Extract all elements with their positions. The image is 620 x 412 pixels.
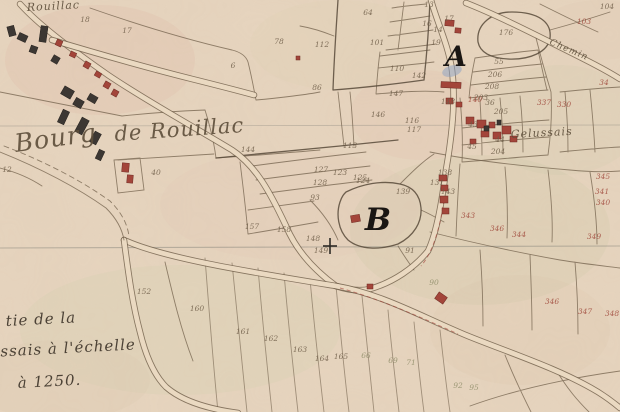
building-red	[441, 81, 461, 88]
building-red	[296, 56, 300, 60]
building-red	[350, 214, 360, 222]
building-red	[456, 102, 462, 107]
parcel-number: 158	[277, 225, 292, 234]
section-marker-A: A	[442, 40, 467, 73]
parcel-number: 71	[406, 358, 416, 367]
parcel-number: 161	[236, 327, 250, 336]
building-red	[122, 163, 130, 173]
parcel-number: 86	[312, 83, 322, 92]
parcel-number: 157	[245, 222, 260, 231]
parcel-number: 163	[293, 345, 308, 354]
parcel-number: 347	[578, 307, 593, 316]
parcel-number: 138	[438, 168, 453, 177]
parcel-number: 112	[315, 40, 330, 49]
map-svg: 1817786124064131617141910111286110142104…	[0, 0, 620, 412]
parcel-number: 101	[370, 38, 384, 47]
building-red	[481, 131, 489, 137]
parcel-number: 346	[490, 224, 505, 233]
parcel-number: 149	[314, 246, 329, 255]
parcel-number: 13	[424, 0, 434, 9]
parcel-number: 124	[356, 176, 371, 185]
parcel-number: 92	[453, 381, 463, 390]
parcel-number: 103	[577, 17, 592, 26]
parcel-number: 206	[487, 70, 503, 79]
parcel-number: 14	[433, 25, 443, 34]
parcel-number: 127	[314, 165, 329, 174]
parcel-number: 143	[441, 187, 456, 196]
parcel-number: 91	[405, 246, 415, 255]
parcel-number: 349	[587, 232, 602, 241]
legend-line: à 1250.	[17, 371, 82, 392]
parcel-number: 66	[361, 351, 371, 360]
parcel-number: 148	[306, 234, 321, 243]
parcel-number: 55	[494, 57, 504, 66]
parcel-number: 152	[137, 287, 152, 296]
parcel-number: 345	[596, 172, 611, 181]
parcel-number: 165	[334, 352, 349, 361]
parcel-number: 162	[264, 334, 279, 343]
parcel-number: 343	[461, 211, 476, 220]
building-dark	[497, 120, 501, 125]
parcel-number: 45	[466, 142, 477, 151]
parcel-number: 19	[431, 38, 441, 47]
parcel-number: 95	[469, 383, 479, 392]
parcel-number: 131	[430, 178, 444, 187]
parcel-number: 139	[396, 187, 411, 196]
parcel-number: 64	[363, 8, 373, 17]
parcel-number: 116	[405, 116, 420, 125]
parcel-number: 69	[388, 356, 398, 365]
parcel-number: 123	[333, 168, 348, 177]
parcel-number: 117	[407, 125, 422, 134]
parcel-number: 346	[545, 297, 560, 306]
building-red	[127, 175, 134, 183]
parcel-number: 18	[80, 15, 90, 24]
parcel-number: 144	[241, 145, 256, 154]
parcel-number: 208	[484, 82, 500, 91]
parcel-number: 348	[605, 309, 620, 318]
building-red	[455, 28, 461, 34]
parcel-number: 44	[494, 135, 505, 144]
parcel-number: 341	[595, 187, 609, 196]
building-dark	[484, 126, 489, 131]
parcel-number: 78	[274, 37, 284, 46]
parcel-number: 113	[343, 141, 358, 150]
parcel-number: 17	[122, 26, 132, 35]
parcel-number: 16	[422, 19, 432, 28]
building-red	[367, 284, 373, 289]
parcel-number: 40	[150, 168, 161, 177]
section-marker-B: B	[364, 202, 391, 238]
parcel-number: 128	[313, 178, 328, 187]
parcel-number: 34	[599, 78, 609, 87]
building-red	[442, 208, 449, 214]
parcel-number: 90	[429, 278, 439, 287]
parcel-number: 104	[600, 2, 615, 11]
parcel-number: 147	[389, 89, 404, 98]
parcel-number: 43	[467, 120, 478, 129]
building-red	[489, 122, 495, 128]
parcel-number: 330	[557, 100, 572, 109]
parcel-number: 340	[596, 198, 611, 207]
parcel-number: 160	[190, 304, 205, 313]
parcel-number: 142	[412, 71, 427, 80]
parcel-number: 93	[310, 193, 320, 202]
parcel-number: 110	[390, 64, 405, 73]
parcel-number: 146	[371, 110, 386, 119]
legend-line: tie de la	[5, 308, 76, 330]
parcel-number: 205	[493, 107, 509, 116]
parcel-number: 204	[490, 147, 506, 156]
parcel-number: 6	[231, 61, 236, 70]
parcel-number: 164	[315, 354, 330, 363]
parcel-number: 148	[441, 97, 456, 106]
parcel-number: 17	[444, 14, 454, 23]
cadastral-map: 1817786124064131617141910111286110142104…	[0, 0, 620, 412]
parcel-number: 36	[485, 98, 495, 107]
parcel-number: 140	[468, 95, 483, 104]
building-red	[440, 196, 448, 203]
parcel-number: 337	[537, 98, 552, 107]
parcel-number: 344	[512, 230, 527, 239]
parcel-number: 12	[2, 165, 12, 174]
parcel-number: 176	[499, 28, 514, 37]
